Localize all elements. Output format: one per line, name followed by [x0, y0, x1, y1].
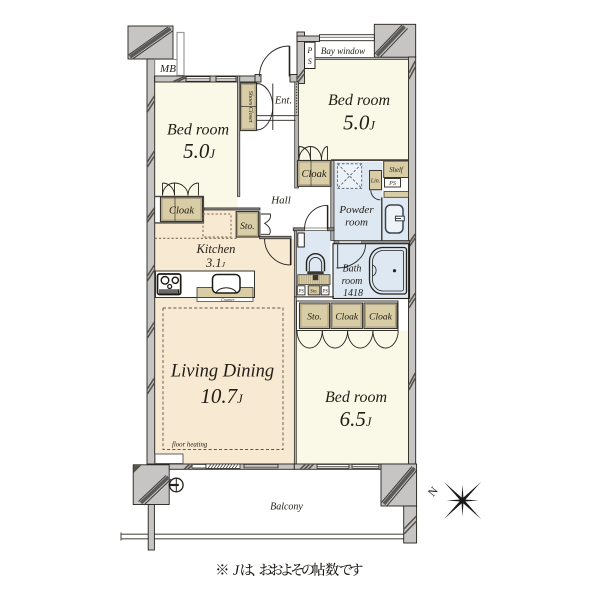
svg-text:1418: 1418 — [343, 288, 363, 299]
svg-text:Bed room: Bed room — [167, 122, 229, 139]
svg-text:Cloak: Cloak — [335, 313, 358, 323]
svg-text:Bed room: Bed room — [328, 92, 390, 109]
svg-text:Cloak: Cloak — [169, 206, 194, 217]
svg-text:Sto.: Sto. — [307, 313, 322, 323]
svg-text:Shelf: Shelf — [389, 167, 404, 174]
svg-text:Ent.: Ent. — [274, 96, 292, 107]
svg-text:PS: PS — [321, 290, 328, 295]
svg-text:Lin.: Lin. — [370, 179, 381, 185]
svg-text:Shoes Closet: Shoes Closet — [247, 91, 254, 123]
svg-text:Hall: Hall — [270, 195, 291, 207]
svg-text:room: room — [345, 217, 368, 229]
svg-text:Sto.: Sto. — [240, 222, 255, 232]
svg-text:Living Dining: Living Dining — [170, 362, 274, 382]
svg-text:Counter: Counter — [221, 297, 235, 302]
svg-text:Cloak: Cloak — [301, 169, 326, 180]
svg-text:P: P — [306, 46, 312, 55]
svg-text:PS: PS — [297, 290, 304, 295]
svg-text:Cloak: Cloak — [369, 313, 392, 323]
svg-text:MB: MB — [159, 63, 176, 75]
svg-text:Sto.: Sto. — [310, 290, 318, 295]
svg-text:Bay window: Bay window — [321, 46, 365, 56]
svg-text:Bed room: Bed room — [325, 389, 387, 406]
svg-text:Powder: Powder — [338, 204, 374, 216]
svg-text:Bath: Bath — [343, 264, 362, 275]
svg-text:PS: PS — [388, 181, 396, 187]
svg-text:Balcony: Balcony — [270, 502, 303, 513]
svg-text:Kitchen: Kitchen — [196, 242, 236, 256]
svg-text:room: room — [342, 276, 363, 287]
svg-text:floor heating: floor heating — [172, 442, 208, 449]
svg-text:S: S — [308, 57, 312, 66]
